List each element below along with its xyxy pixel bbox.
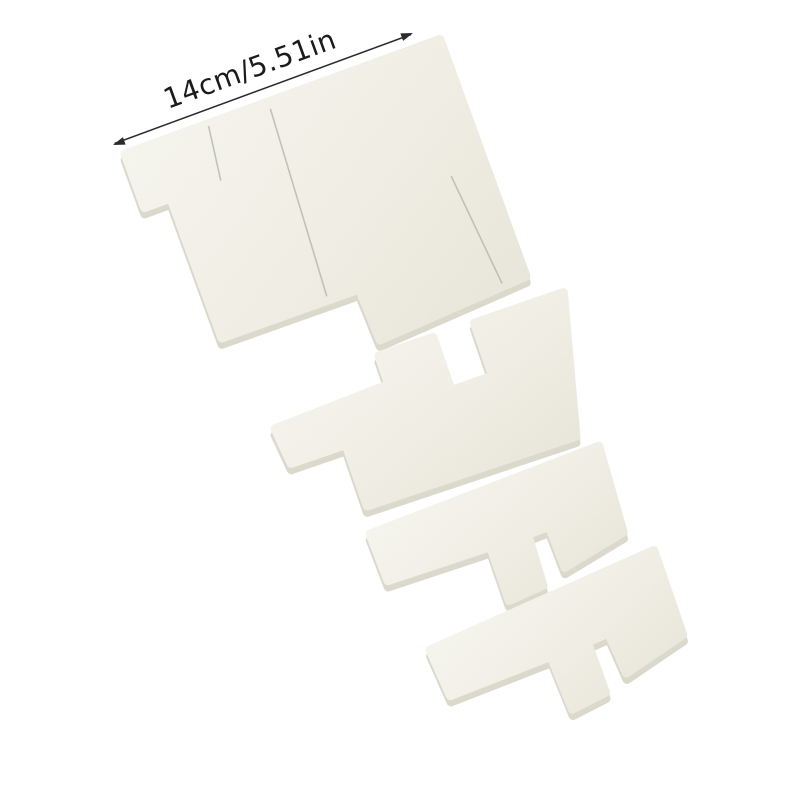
product-photo-canvas: 14cm/5.51in: [0, 0, 800, 800]
